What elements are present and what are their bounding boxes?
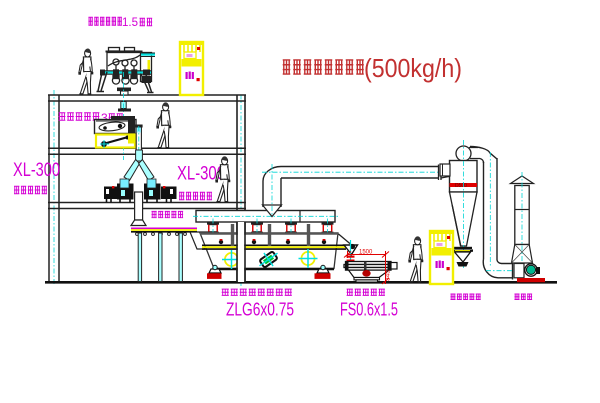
svg-text:1500: 1500 bbox=[359, 250, 373, 256]
svg-text:ZLG6x0.75: ZLG6x0.75 bbox=[226, 300, 294, 320]
svg-text:XL-300: XL-300 bbox=[13, 160, 60, 181]
svg-text:1.5: 1.5 bbox=[122, 17, 138, 29]
svg-text:FS0.6x1.5: FS0.6x1.5 bbox=[340, 300, 398, 320]
svg-text:345: 345 bbox=[385, 270, 392, 281]
svg-text:(500kg/h): (500kg/h) bbox=[364, 53, 462, 83]
svg-text:D500: D500 bbox=[455, 183, 467, 189]
